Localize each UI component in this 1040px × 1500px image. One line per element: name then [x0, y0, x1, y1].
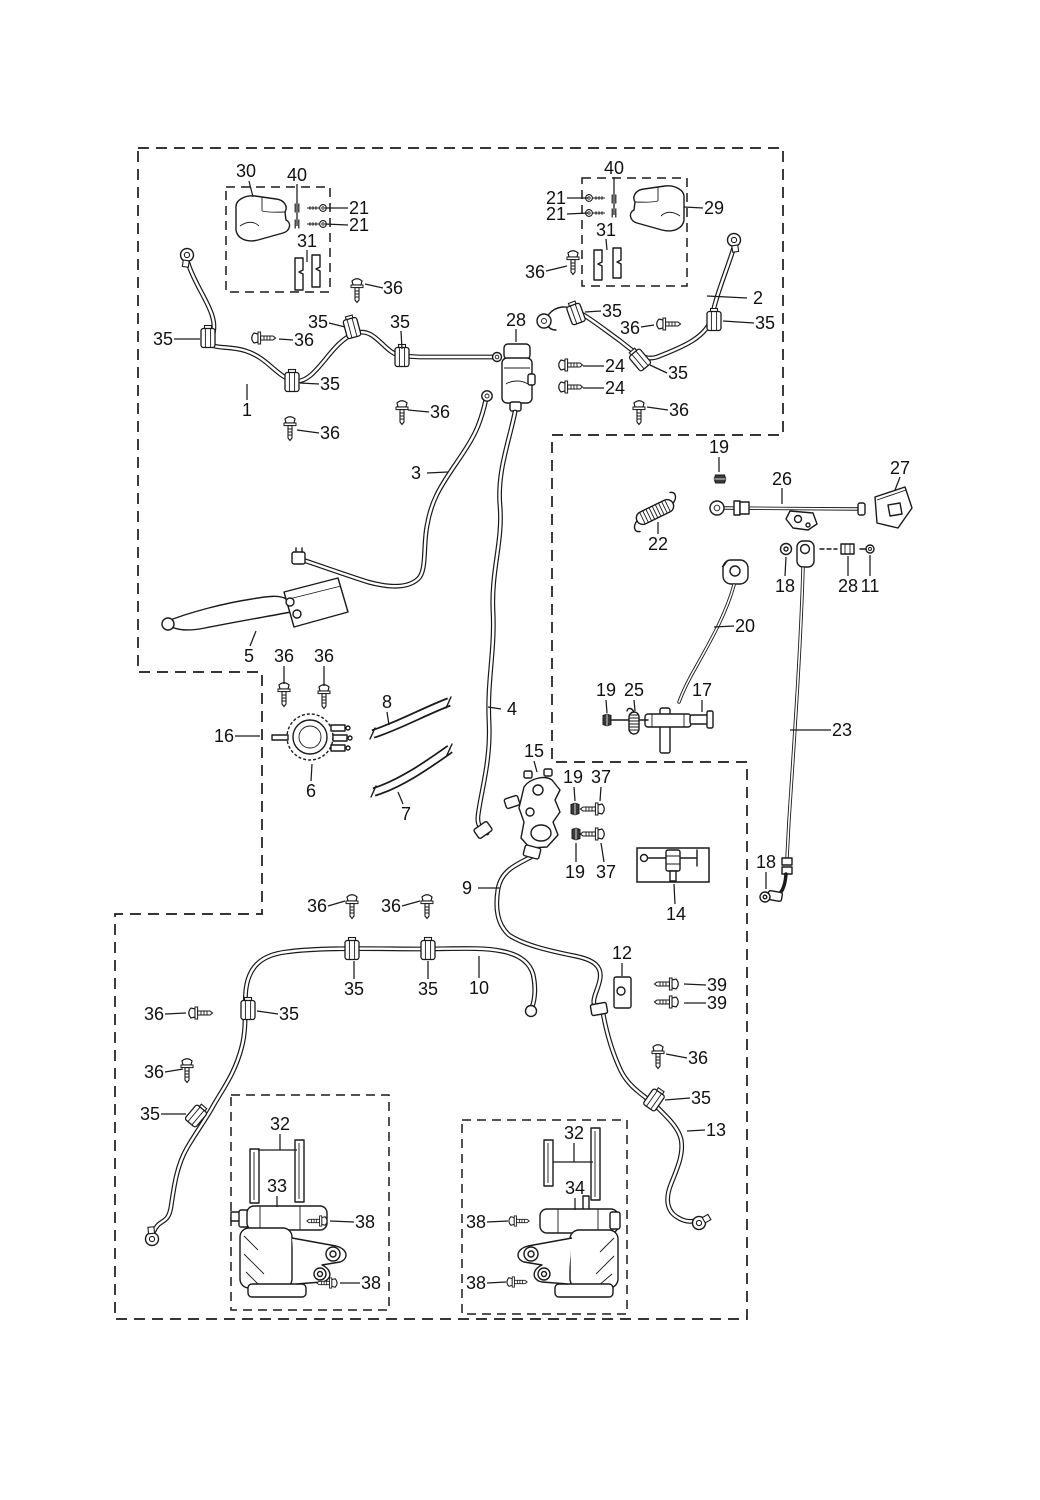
leader-line-25-45 — [634, 700, 635, 711]
leader-line-35-21 — [585, 311, 601, 312]
adjuster — [782, 858, 792, 865]
callout-25-45: 25 — [624, 680, 644, 700]
part-15-junction — [504, 769, 560, 848]
leader-line-39-64 — [684, 984, 706, 985]
callout-36-22: 36 — [620, 318, 640, 338]
bolt-36 — [284, 417, 296, 441]
bracket-31 — [613, 248, 621, 278]
side-boss — [528, 374, 535, 385]
screw-21 — [586, 195, 605, 202]
leader-line-36-10 — [365, 284, 383, 288]
leader-line-21-3 — [325, 224, 348, 225]
callout-19-30: 19 — [709, 437, 729, 457]
part-13-hose — [590, 1002, 712, 1232]
part-34-caliper — [507, 1128, 620, 1297]
top-screw — [544, 769, 552, 776]
left-tab — [272, 735, 288, 740]
leader-line-35-11 — [329, 323, 345, 327]
callout-1-16: 1 — [242, 400, 252, 420]
callout-35-25: 35 — [668, 363, 688, 383]
bolt-36 — [181, 1059, 193, 1083]
part-14-valve — [641, 850, 698, 881]
callout-38-75: 38 — [355, 1212, 375, 1232]
callout-22-33: 22 — [648, 534, 668, 554]
callout-36-58: 36 — [307, 896, 327, 916]
valve-stem — [670, 871, 676, 881]
callout-36-59: 36 — [381, 896, 401, 916]
guard-plate — [875, 487, 912, 528]
callout-36-40: 36 — [314, 646, 334, 666]
bottom-lug — [248, 1284, 306, 1297]
bolt-39 — [655, 978, 679, 990]
callout-36-14: 36 — [294, 330, 314, 350]
part-2-front-brake-hose — [537, 233, 742, 358]
bolt-36 — [421, 895, 433, 919]
bolt-37 — [581, 828, 605, 840]
leader-line-36-22 — [641, 325, 654, 327]
callout-39-65: 39 — [707, 993, 727, 1013]
callout-9-57: 9 — [462, 878, 472, 898]
callout-3-29: 3 — [411, 463, 421, 483]
part-7-strip — [371, 744, 452, 797]
rod-top-fasteners — [781, 541, 875, 567]
clamps-35 — [185, 300, 721, 1128]
prong-pin — [348, 736, 352, 740]
callout-35-67: 35 — [279, 1004, 299, 1024]
callout-27-32: 27 — [890, 458, 910, 478]
leader-line-35-23 — [723, 321, 754, 323]
valve-body — [666, 850, 680, 871]
callout-31-9: 31 — [596, 220, 616, 240]
sleeve-28 — [841, 544, 854, 554]
callout-11-36: 11 — [861, 576, 880, 596]
callout-36-66: 36 — [144, 1004, 164, 1024]
leader-line-19-44 — [606, 700, 607, 713]
elbow-fitting — [590, 1002, 608, 1016]
callout-18-56: 18 — [756, 852, 776, 872]
callout-15-50: 15 — [524, 741, 544, 761]
clamp-35 — [707, 309, 721, 331]
callout-10-63: 10 — [469, 978, 489, 998]
part-33-caliper — [231, 1140, 346, 1297]
bottom-lug — [555, 1284, 613, 1297]
parts-diagram-canvas: 3040212131402121293136353535363513636362… — [0, 0, 1040, 1500]
reservoir-cap — [504, 344, 530, 359]
bolt-24 — [559, 359, 583, 371]
clamp-35 — [241, 998, 255, 1020]
callout-35-12: 35 — [390, 312, 410, 332]
callout-19-44: 19 — [596, 680, 616, 700]
callout-24-26: 24 — [605, 356, 625, 376]
bolt-36 — [396, 401, 408, 425]
brake-pad-32 — [295, 1140, 304, 1202]
callout-18-34: 18 — [775, 576, 795, 596]
leader-line-36-17 — [297, 430, 319, 433]
callout-7-49: 7 — [401, 804, 411, 824]
locknut — [734, 501, 740, 515]
callout-19-53: 19 — [565, 862, 585, 882]
callout-24-27: 24 — [605, 378, 625, 398]
prong-pin — [346, 746, 350, 750]
nut-19 — [603, 714, 611, 726]
bolt-36 — [278, 683, 290, 707]
callout-40-5: 40 — [604, 158, 624, 178]
callout-39-64: 39 — [707, 975, 727, 995]
callout-17-46: 17 — [692, 680, 712, 700]
spring-25 — [627, 708, 639, 734]
left-port — [504, 795, 520, 809]
callout-37-54: 37 — [596, 862, 616, 882]
callout-36-18: 36 — [430, 402, 450, 422]
part-4-hose — [473, 412, 515, 839]
banjo-eye — [482, 391, 492, 401]
leader-line-38-79 — [487, 1221, 508, 1222]
callout-38-79: 38 — [466, 1212, 486, 1232]
parts-diagram-page: 3040212131402121293136353535363513636362… — [0, 0, 1040, 1500]
leader-line-8-42 — [387, 712, 389, 725]
leader-line-19-51 — [574, 787, 575, 801]
pivot-screw — [293, 610, 301, 618]
nut-19 — [714, 475, 726, 483]
pipe-fitting — [493, 353, 502, 362]
bolt-39 — [655, 996, 679, 1008]
callout-36-68: 36 — [144, 1062, 164, 1082]
callout-35-13: 35 — [153, 329, 173, 349]
callout-30-0: 30 — [236, 161, 256, 181]
callout-40-1: 40 — [287, 165, 307, 185]
callout-34-78: 34 — [565, 1178, 585, 1198]
leader-line-38-80 — [487, 1282, 506, 1283]
bracket-31 — [295, 258, 303, 290]
caliper-cylinder — [247, 1206, 327, 1230]
bolt-36 — [652, 1045, 664, 1069]
cap-outer — [287, 714, 333, 760]
top-screw — [524, 771, 532, 778]
ball-end — [526, 1006, 537, 1017]
callout-16-41: 16 — [214, 726, 234, 746]
connector — [292, 552, 305, 564]
callout-31-4: 31 — [297, 231, 317, 251]
nut-19 — [571, 803, 579, 815]
leader-line-38-75 — [330, 1221, 354, 1222]
leader-line-27-32 — [895, 477, 900, 490]
screw-11-head — [866, 545, 874, 553]
bolt-36 — [318, 685, 330, 709]
leader-line-13-73 — [687, 1130, 705, 1131]
bolt-36 — [252, 332, 276, 344]
pin-17-collar — [707, 711, 713, 728]
mount-eye — [326, 1247, 340, 1261]
leader-line-36-59 — [402, 901, 420, 906]
bolt-36 — [633, 401, 645, 425]
bolt-36 — [189, 1007, 213, 1019]
end-cap — [858, 503, 865, 515]
lever-tip — [162, 618, 174, 630]
prong — [333, 735, 347, 741]
clamp-35 — [185, 1102, 210, 1128]
leader-line-35-15 — [300, 383, 319, 384]
callout-35-69: 35 — [140, 1104, 160, 1124]
callout-20-37: 20 — [735, 616, 755, 636]
leader-line-37-54 — [601, 843, 604, 862]
prong — [331, 745, 345, 751]
leader-line-6-48 — [311, 764, 312, 781]
bleed-pin — [583, 1196, 589, 1210]
leader-line-3-29 — [427, 472, 448, 473]
bolt-38 — [509, 1216, 529, 1226]
banjo-fitting — [727, 233, 742, 253]
bolt-36 — [346, 895, 358, 919]
leader-line-21-7 — [567, 213, 588, 214]
callout-28-35: 28 — [838, 576, 858, 596]
clamp-35 — [285, 370, 299, 392]
leader-line-36-19 — [546, 266, 567, 271]
callout-21-3: 21 — [349, 215, 369, 235]
callout-36-39: 36 — [274, 646, 294, 666]
callout-36-10: 36 — [383, 278, 403, 298]
screw-21 — [307, 221, 326, 228]
callout-12-60: 12 — [612, 943, 632, 963]
callout-4-43: 4 — [507, 699, 517, 719]
clamp-35 — [643, 1086, 667, 1112]
leader-line-29-8 — [684, 207, 703, 208]
pin-17 — [690, 715, 708, 724]
nut-19 — [572, 828, 580, 840]
nut-18 — [781, 544, 792, 555]
bolt-36 — [567, 251, 579, 275]
mount-eye — [538, 1268, 550, 1280]
mount-eye — [314, 1268, 326, 1280]
brake-pad-32 — [591, 1128, 600, 1200]
bolts-24 — [559, 359, 583, 393]
banjo-fitting — [690, 1211, 713, 1232]
callout-5-38: 5 — [244, 646, 254, 666]
callout-19-51: 19 — [563, 767, 583, 787]
chamber — [531, 825, 551, 841]
callout-13-73: 13 — [706, 1120, 726, 1140]
pivot-screw — [286, 598, 294, 606]
clamp-35 — [345, 938, 359, 960]
screw-21 — [307, 205, 326, 212]
bolt-24 — [559, 381, 583, 393]
callout-28-24: 28 — [506, 310, 526, 330]
leader-line-36-68 — [165, 1069, 183, 1072]
callout-36-28: 36 — [669, 400, 689, 420]
end-cap — [610, 1212, 620, 1229]
mount-eye — [524, 1247, 538, 1261]
leader-line-18-34 — [785, 557, 786, 576]
prong — [331, 725, 345, 731]
bolt-head — [641, 855, 648, 862]
callout-32-77: 32 — [564, 1123, 584, 1143]
leader-line-14-55 — [674, 884, 675, 904]
clamp-35 — [201, 326, 215, 348]
callout-35-23: 35 — [755, 313, 775, 333]
leader-line-2-20 — [707, 296, 747, 298]
part-28-master-cylinder — [502, 344, 535, 411]
nut-18 — [760, 892, 770, 902]
bolt-37 — [581, 803, 605, 815]
clamp-35 — [421, 938, 435, 960]
outlet — [510, 402, 521, 411]
callout-38-80: 38 — [466, 1273, 486, 1293]
screw-21 — [586, 210, 605, 217]
part-27-guard — [875, 487, 912, 528]
leader-line-35-67 — [257, 1011, 278, 1014]
callout-8-42: 8 — [382, 692, 392, 712]
clamp-35 — [565, 300, 586, 325]
bracket-31 — [312, 255, 320, 287]
brake-pad-32 — [544, 1140, 553, 1186]
callout-35-71: 35 — [691, 1088, 711, 1108]
bracket-31 — [594, 250, 602, 280]
adjuster — [740, 502, 749, 514]
part-5-brake-lever-assembly — [162, 578, 348, 630]
callout-2-20: 2 — [753, 288, 763, 308]
leader-line-5-38 — [250, 631, 256, 646]
callout-14-55: 14 — [666, 904, 686, 924]
part-6-cap — [272, 714, 352, 760]
callout-26-31: 26 — [772, 469, 792, 489]
callout-38-76: 38 — [361, 1273, 381, 1293]
callout-35-11: 35 — [308, 312, 328, 332]
part-12-bracket — [614, 977, 678, 1008]
part-3-hose — [292, 391, 492, 586]
pedal-eye — [723, 560, 748, 584]
junction-fasteners — [571, 803, 604, 840]
leader-line-35-71 — [665, 1098, 690, 1100]
callout-37-52: 37 — [591, 767, 611, 787]
bolt-38 — [507, 1277, 527, 1287]
leader-line-36-70 — [666, 1054, 687, 1058]
leader-line-7-49 — [398, 792, 403, 804]
callout-6-48: 6 — [306, 781, 316, 801]
leader-line-36-14 — [279, 339, 293, 340]
leader-line-31-9 — [606, 239, 607, 250]
lever-blade — [165, 596, 291, 630]
callout-36-19: 36 — [525, 262, 545, 282]
brake-pad-32 — [250, 1149, 259, 1203]
pivot-eye — [537, 314, 551, 328]
callout-35-61: 35 — [344, 979, 364, 999]
leader-line-36-58 — [328, 901, 345, 906]
prong-pin — [346, 726, 350, 730]
leader-line-36-66 — [165, 1013, 186, 1014]
callout-21-7: 21 — [546, 204, 566, 224]
callout-23-47: 23 — [832, 720, 852, 740]
callout-33-74: 33 — [267, 1176, 287, 1196]
leader-line-37-52 — [600, 787, 601, 801]
housing-body — [236, 196, 290, 241]
bolt-36 — [351, 279, 363, 303]
housing-body — [630, 186, 684, 231]
callout-35-62: 35 — [418, 979, 438, 999]
callout-36-70: 36 — [688, 1048, 708, 1068]
bolt-36 — [657, 318, 681, 330]
ball-joint — [710, 501, 724, 515]
callout-35-15: 35 — [320, 374, 340, 394]
callout-29-8: 29 — [704, 198, 724, 218]
callout-36-17: 36 — [320, 423, 340, 443]
leader-line-30-0 — [249, 181, 253, 197]
callout-32-72: 32 — [270, 1114, 290, 1134]
leader-line-36-28 — [647, 407, 668, 410]
leader-line-15-50 — [534, 761, 537, 772]
leader-line-36-18 — [408, 410, 429, 412]
banjo-fitting — [179, 248, 194, 268]
leader-line-35-25 — [650, 365, 667, 373]
part-22-spring — [627, 491, 683, 533]
part-1-front-brake-hose — [179, 248, 502, 382]
